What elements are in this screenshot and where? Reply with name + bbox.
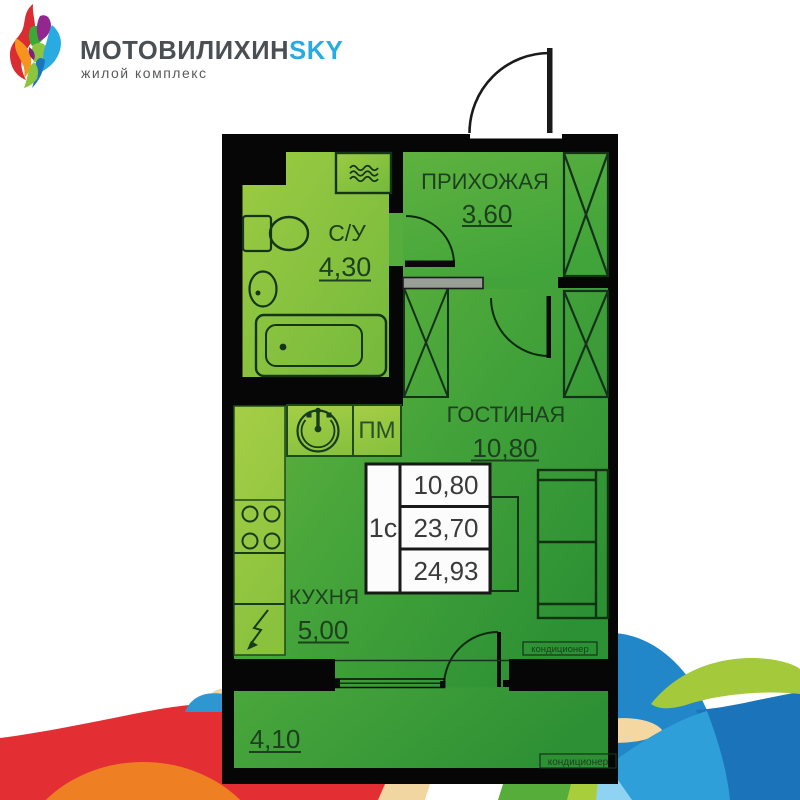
svg-text:3,60: 3,60 [462,199,513,229]
svg-text:10,80: 10,80 [472,433,537,463]
svg-text:жилой комплекс: жилой комплекс [81,65,208,81]
svg-text:10,80: 10,80 [413,470,478,500]
svg-text:4,30: 4,30 [319,252,372,282]
svg-text:24,93: 24,93 [413,556,478,586]
svg-text:4,10: 4,10 [250,724,301,754]
svg-text:5,00: 5,00 [298,615,349,645]
svg-text:1с: 1с [369,513,398,543]
svg-text:ГОСТИНАЯ: ГОСТИНАЯ [447,402,566,427]
svg-text:ПМ: ПМ [358,417,395,444]
svg-text:ПРИХОЖАЯ: ПРИХОЖАЯ [421,169,549,194]
svg-text:кондиционер: кондиционер [548,757,609,768]
svg-text:23,70: 23,70 [413,513,478,543]
svg-text:КУХНЯ: КУХНЯ [289,586,359,609]
svg-text:кондиционер: кондиционер [531,644,589,655]
svg-text:С/У: С/У [328,220,366,246]
svg-text:МОТОВИЛИХИНSKY: МОТОВИЛИХИНSKY [80,37,343,65]
